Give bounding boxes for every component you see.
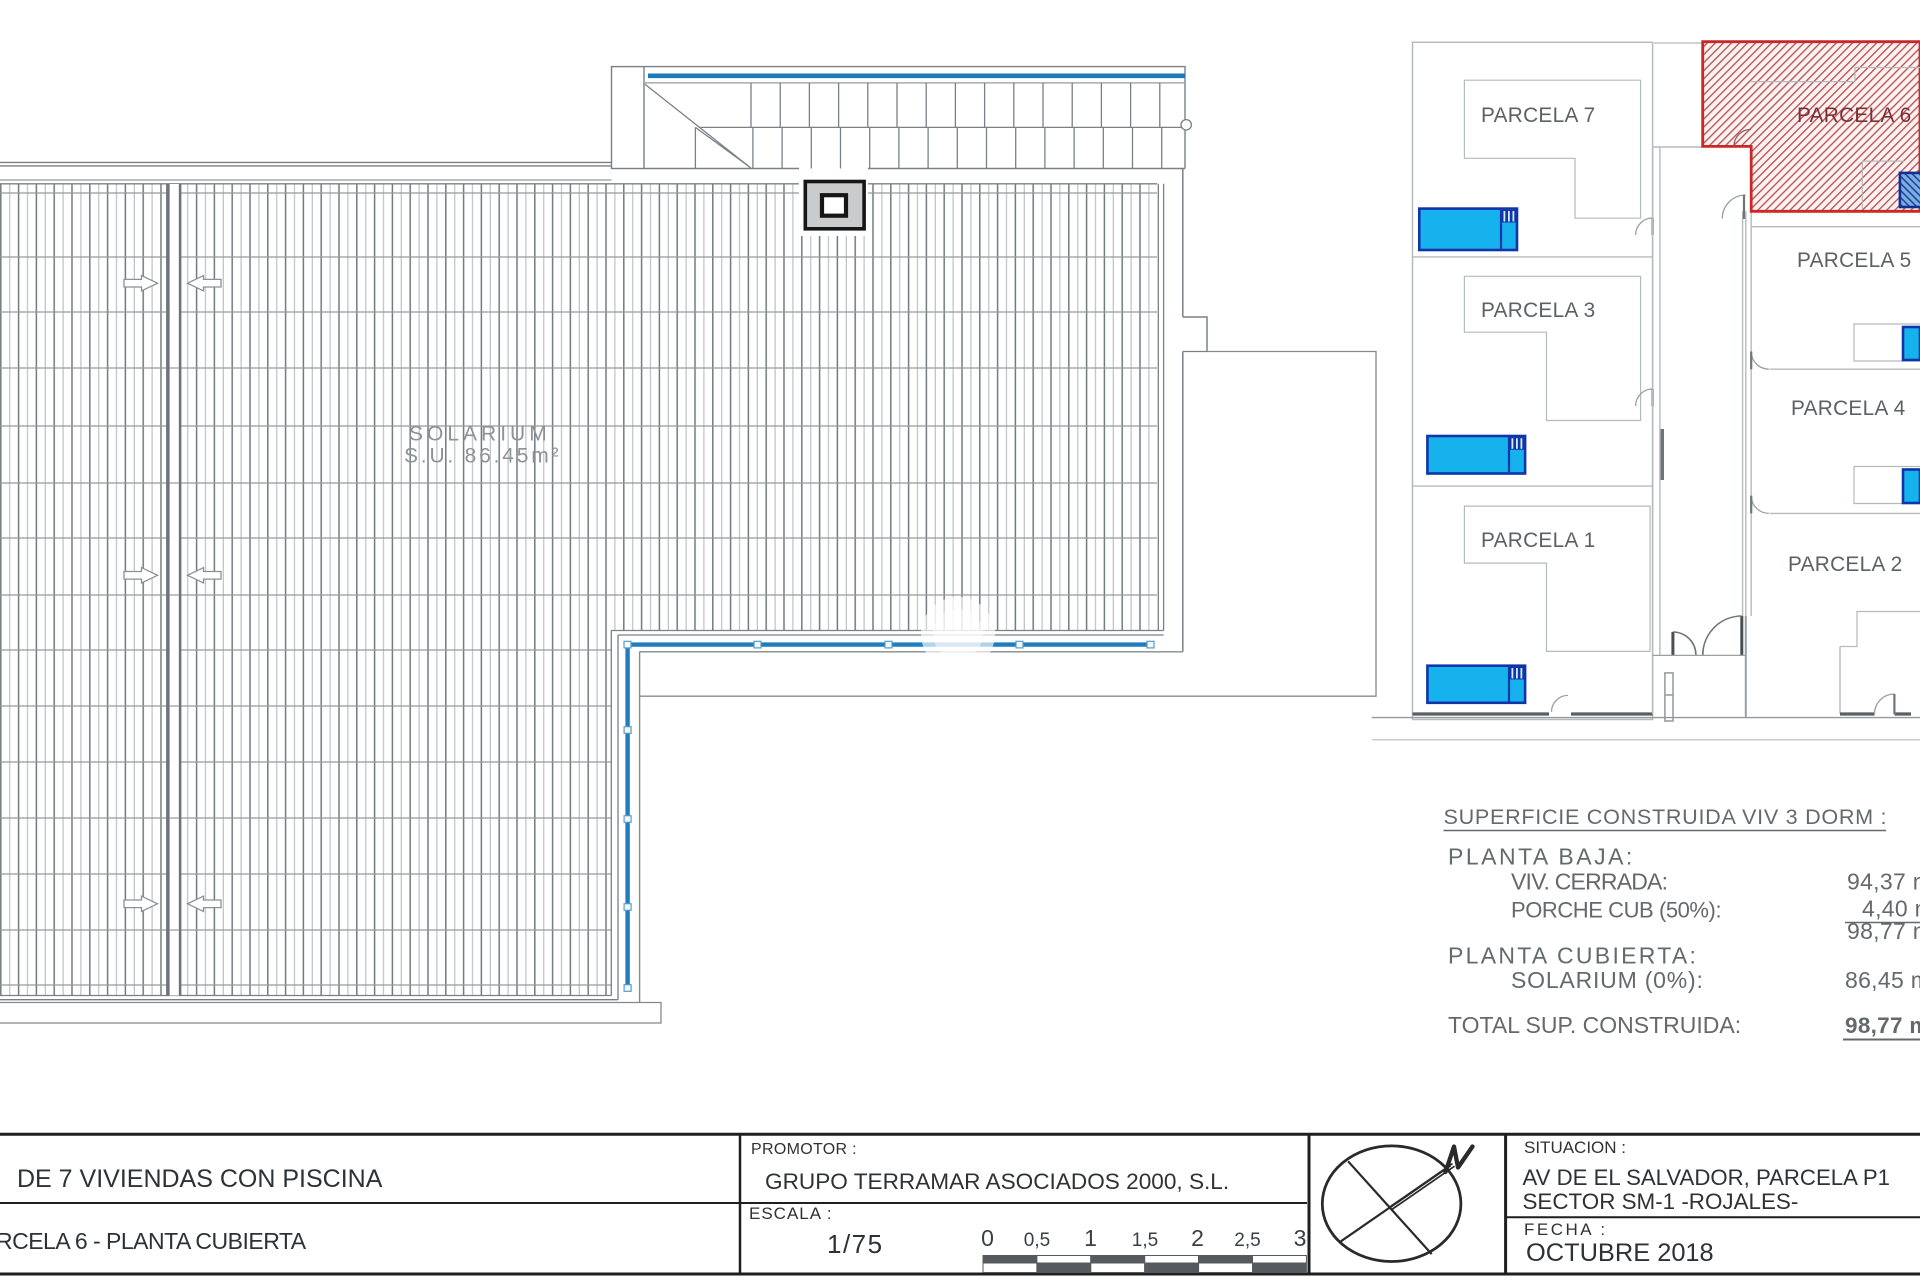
- svg-text:98,77 m: 98,77 m: [1847, 918, 1920, 944]
- svg-text:VIV. CERRADA:: VIV. CERRADA:: [1511, 869, 1667, 895]
- svg-text:SOLARIUM (0%):: SOLARIUM (0%):: [1511, 967, 1704, 993]
- svg-text:1/75: 1/75: [827, 1229, 884, 1259]
- svg-text:PARCELA 5: PARCELA 5: [1797, 249, 1911, 272]
- svg-text:0,5: 0,5: [1024, 1230, 1050, 1251]
- svg-text:0: 0: [981, 1225, 994, 1251]
- svg-text:ESCALA :: ESCALA :: [749, 1204, 833, 1223]
- svg-text:PLANTA CUBIERTA:: PLANTA CUBIERTA:: [1448, 943, 1698, 969]
- svg-text:94,37 m: 94,37 m: [1847, 869, 1920, 895]
- svg-text:PARCELA 7: PARCELA 7: [1481, 104, 1595, 127]
- svg-text:S.U. 86.45m²: S.U. 86.45m²: [404, 445, 561, 468]
- svg-text:86,45 m: 86,45 m: [1845, 967, 1920, 993]
- svg-text:FECHA :: FECHA :: [1524, 1220, 1608, 1239]
- svg-text:GRUPO TERRAMAR ASOCIADOS 2000,: GRUPO TERRAMAR ASOCIADOS 2000, S.L.: [765, 1169, 1229, 1194]
- svg-text:PARCELA 1: PARCELA 1: [1481, 529, 1595, 552]
- svg-text:98,77 m: 98,77 m: [1845, 1013, 1920, 1038]
- svg-text:2: 2: [1191, 1225, 1204, 1251]
- svg-text:PLANTA BAJA:: PLANTA BAJA:: [1448, 844, 1635, 870]
- svg-text:SITUACION :: SITUACION :: [1524, 1138, 1626, 1157]
- svg-text:PORCHE CUB (50%):: PORCHE CUB (50%):: [1511, 898, 1721, 923]
- svg-text:PARCELA 6: PARCELA 6: [1797, 104, 1911, 127]
- svg-text:DE 7 VIVIENDAS CON PISCINA: DE 7 VIVIENDAS CON PISCINA: [17, 1165, 383, 1193]
- svg-text:PARCELA 4: PARCELA 4: [1791, 397, 1905, 420]
- svg-text:PROMOTOR :: PROMOTOR :: [751, 1141, 857, 1158]
- svg-text:RCELA 6 - PLANTA CUBIERTA: RCELA 6 - PLANTA CUBIERTA: [0, 1228, 307, 1254]
- svg-text:PARCELA 2: PARCELA 2: [1788, 553, 1902, 576]
- svg-text:PARCELA 3: PARCELA 3: [1481, 299, 1595, 322]
- svg-text:SOLARIUM: SOLARIUM: [409, 423, 551, 446]
- svg-text:3: 3: [1294, 1225, 1307, 1251]
- svg-text:1,5: 1,5: [1132, 1230, 1158, 1251]
- svg-text:TOTAL SUP. CONSTRUIDA:: TOTAL SUP. CONSTRUIDA:: [1448, 1012, 1741, 1038]
- svg-text:1: 1: [1084, 1225, 1097, 1251]
- svg-text:SUPERFICIE CONSTRUIDA VIV 3 DO: SUPERFICIE CONSTRUIDA VIV 3 DORM :: [1444, 804, 1888, 829]
- svg-text:SECTOR SM-1 -ROJALES-: SECTOR SM-1 -ROJALES-: [1523, 1189, 1799, 1214]
- svg-text:AV DE EL SALVADOR, PARCELA P1: AV DE EL SALVADOR, PARCELA P1: [1523, 1165, 1890, 1190]
- svg-text:OCTUBRE 2018: OCTUBRE 2018: [1526, 1239, 1714, 1267]
- svg-text:2,5: 2,5: [1234, 1230, 1260, 1251]
